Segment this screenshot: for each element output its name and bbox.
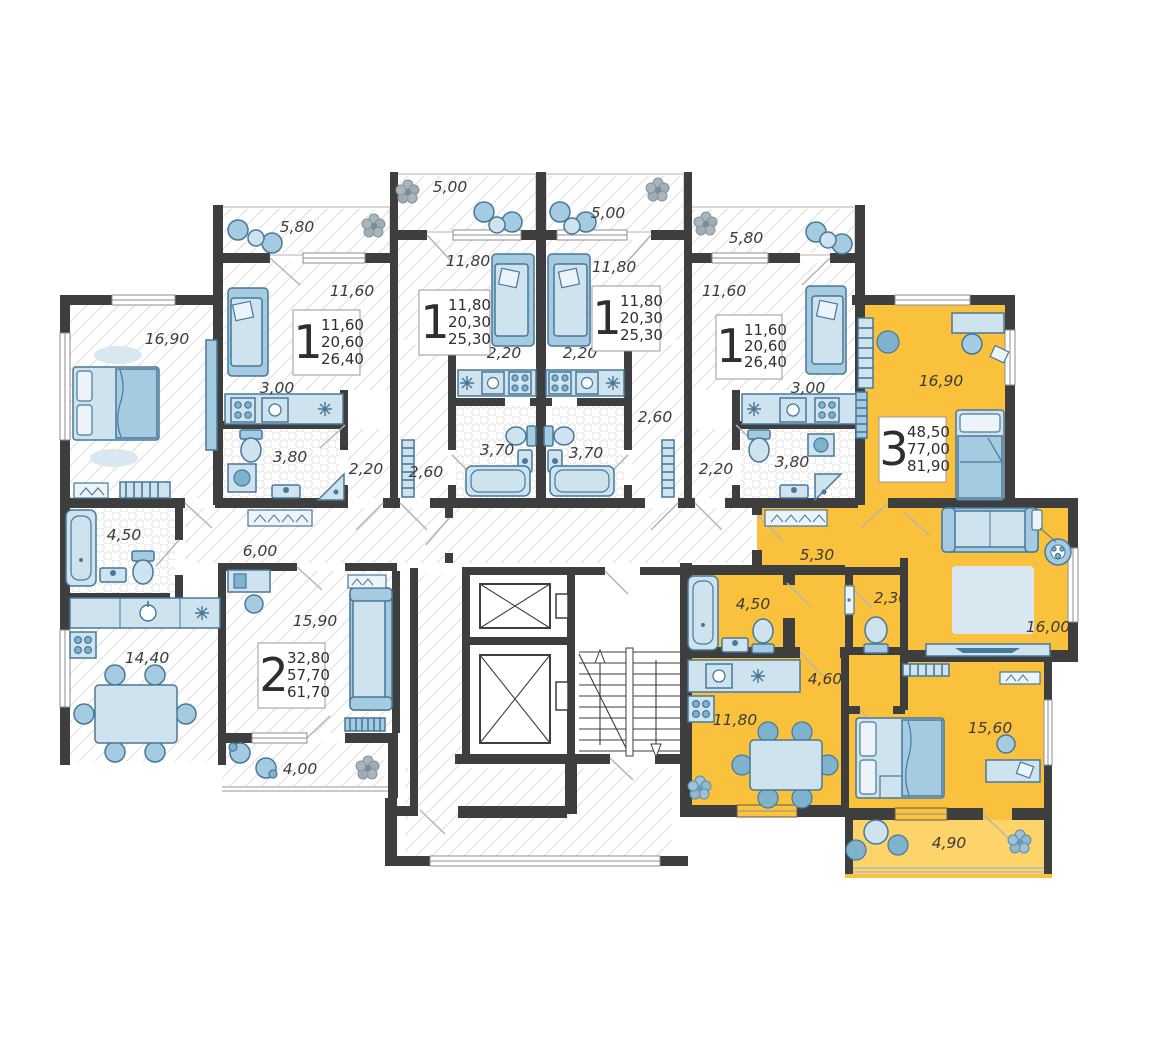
window-icon [1044,700,1052,765]
area-total: 81,90 [907,457,950,475]
bench-icon [765,510,827,526]
stove-icon [688,696,714,722]
apartment-1-right-region[interactable] [684,172,865,508]
bathtub-icon [688,576,718,650]
elevator-icon [480,584,568,628]
fridge-icon [751,669,765,683]
apartment-1-mid-left-region[interactable] [390,172,536,508]
room-area-label: 16,90 [919,372,964,390]
tv-stand-icon [926,644,1050,656]
elevator-icon [480,655,568,743]
room-area-label: 11,80 [713,711,758,729]
double-bed-icon [856,718,944,798]
sofa-icon [942,508,1038,552]
area-no-balcony: 77,00 [907,440,950,458]
room-area-label: 2,30 [874,589,909,607]
room-area-label: 5,30 [800,546,835,564]
window-icon [895,808,947,820]
carpet-icon [952,566,1034,634]
window-icon [430,856,660,866]
room-area-label: 4,90 [932,834,967,852]
door-leaf-icon [845,586,854,614]
bench-icon [1000,672,1040,684]
toilet-icon [864,617,888,653]
floor-plan-page: 5,80 11,60 3,00 3,80 2,20 5,00 11,80 2,2… [0,0,1150,1040]
room-area-label: 16,00 [1026,618,1071,636]
apartment-1-mid-right-region[interactable] [536,172,692,508]
toilet-icon [752,619,774,653]
elevator-stair-core [480,584,683,757]
single-bed-icon [956,410,1004,500]
chair-icon [877,331,899,353]
room-area-label: 15,60 [968,719,1013,737]
window-icon [895,295,970,305]
room-area-label: 4,60 [808,670,843,688]
sink-icon [722,638,748,652]
wardrobe-icon [903,664,949,676]
area-living: 48,50 [907,423,950,441]
apartment-2-region[interactable] [60,295,400,795]
apartment-card-3[interactable]: 3 48,50 77,00 81,90 [879,417,950,482]
room-area-label: 4,50 [736,595,771,613]
floor-plan: 5,80 11,60 3,00 3,80 2,20 5,00 11,80 2,2… [0,0,1150,1040]
apartment-type: 3 [879,422,908,476]
pet-bowl-icon [1045,539,1071,565]
stairs-icon [579,648,683,757]
